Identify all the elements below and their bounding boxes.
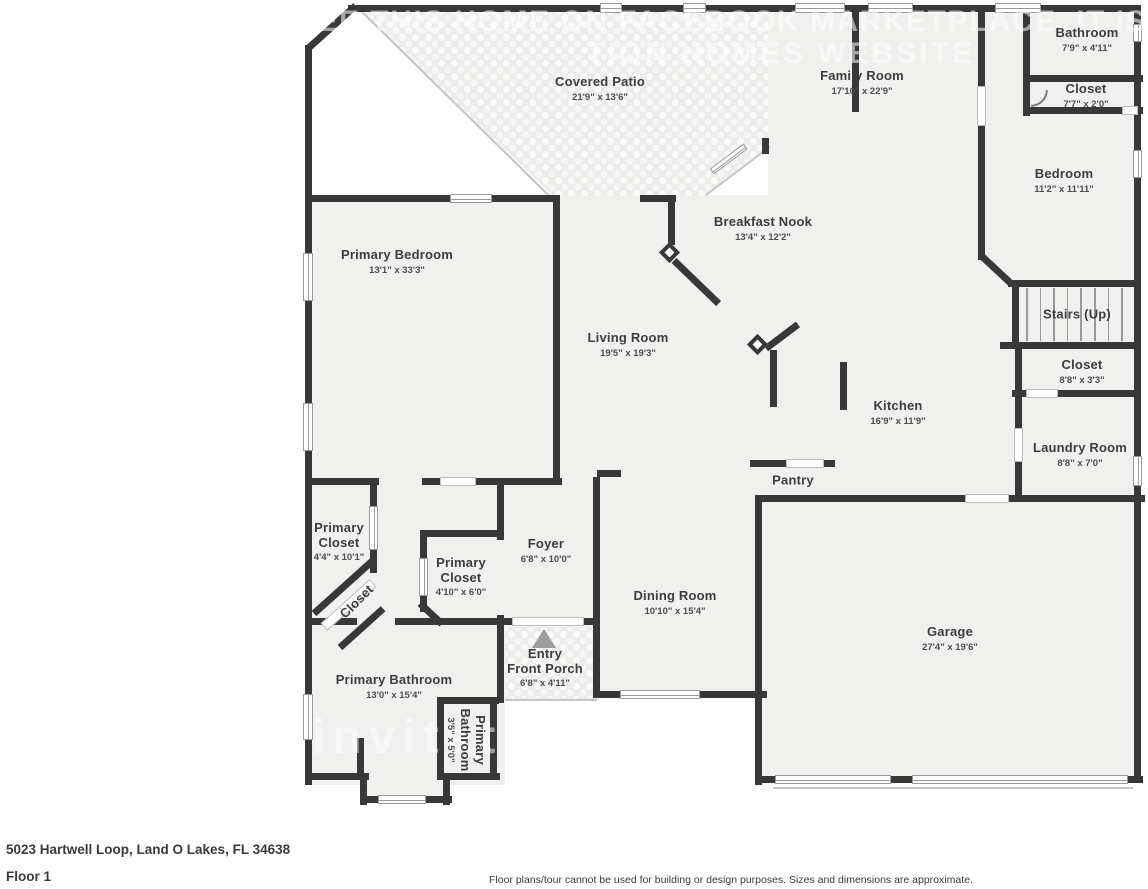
wall-segment [1015,460,1022,502]
window-marker [683,3,706,13]
wall-segment [755,495,1145,502]
window-marker [303,253,313,301]
wall-segment [1015,397,1022,431]
stair-tread [1121,288,1123,341]
window-marker [378,795,426,804]
floor-plan-page: SEE THIS HOME ON FACEBOOK MARKETPLACE, I… [0,0,1148,889]
wall-segment [770,350,777,407]
window-marker [450,194,492,203]
window-marker [775,775,891,784]
window-marker [1133,24,1142,42]
wall-segment [762,138,769,154]
wall-segment [357,738,364,780]
edge-line [505,699,597,701]
window-marker [995,3,1041,13]
door-opening [965,494,1009,503]
stair-tread [1053,288,1055,341]
wall-segment [1000,342,1141,349]
window-marker [1133,150,1142,178]
window-marker [1133,456,1142,486]
stair-tread [1108,288,1110,341]
wall-segment [443,773,450,805]
room-area-main-left [305,195,768,500]
door-opening [1122,106,1138,115]
window-marker [912,775,1128,784]
wall-segment [755,495,762,785]
entry-arrow-icon [532,629,556,648]
covered-patio-texture [305,5,768,198]
window-marker [303,694,313,740]
door-opening [1014,428,1023,462]
stair-tread [1080,288,1082,341]
wall-segment [312,195,555,202]
wall-segment [1015,349,1022,395]
floor-plan-canvas: SEE THIS HOME ON FACEBOOK MARKETPLACE, I… [0,0,1148,810]
wall-segment [978,5,985,260]
wall-segment [593,477,600,698]
wall-segment [420,530,502,537]
window-marker [620,690,700,699]
wall-segment [1134,5,1141,783]
stair-tread [1067,288,1069,341]
wall-segment [668,195,675,245]
door-opening [977,86,986,126]
wall-segment [840,362,847,410]
room-area-primary-suite [305,480,505,785]
wall-segment [1023,82,1030,116]
room-area-garage [755,500,1141,783]
wall-segment [1008,280,1141,287]
door-opening [440,477,476,486]
wall-segment [1023,75,1143,82]
wall-segment [597,470,621,477]
window-marker [369,506,378,550]
footer-address: 5023 Hartwell Loop, Land O Lakes, FL 346… [6,842,290,857]
wall-segment [497,478,504,540]
door-swing-arc [1031,90,1049,108]
wall-segment [553,195,560,485]
door-opening [786,459,824,468]
door-opening [512,617,584,626]
stair-tread [1040,288,1042,341]
wall-segment [1012,280,1019,349]
wall-segment [437,697,444,780]
stair-tread [1026,288,1028,341]
stair-tread [1094,288,1096,341]
window-marker [303,403,313,451]
window-marker [795,3,845,13]
edge-line [773,787,1133,789]
window-marker [600,3,622,13]
wall-segment [490,697,497,780]
wall-segment [1023,5,1030,83]
window-marker [419,558,428,596]
wall-segment [306,3,358,51]
door-opening [1026,389,1058,398]
wall-segment [497,615,504,703]
footer-floor-label: Floor 1 [6,869,51,884]
room-area-dining [594,500,762,698]
wall-segment [852,5,859,112]
wall-segment [305,478,379,485]
footer-disclaimer: Floor plans/tour cannot be used for buil… [489,874,973,886]
window-marker [868,3,913,13]
